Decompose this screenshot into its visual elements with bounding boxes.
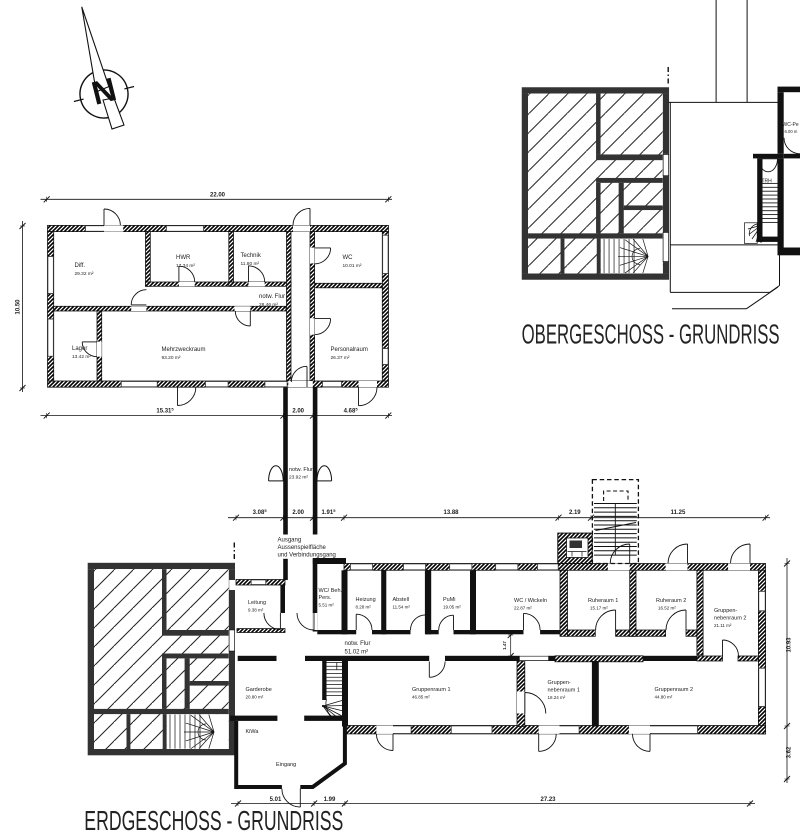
svg-text:Gruppenraum 2: Gruppenraum 2 [655,687,694,693]
svg-text:2.19: 2.19 [569,510,581,516]
svg-text:Gruppen-: Gruppen- [714,608,737,614]
svg-text:51.02 m²: 51.02 m² [345,650,369,656]
svg-text:Pers.: Pers. [319,595,332,601]
svg-text:6.00 m: 6.00 m [785,129,798,134]
svg-text:Mehrzweckraum: Mehrzweckraum [162,347,206,353]
svg-text:notw. Flur: notw. Flur [289,467,313,473]
svg-text:18.24 m²: 18.24 m² [548,695,566,700]
svg-text:nebenraum 2: nebenraum 2 [714,616,746,622]
svg-text:5.51 m²: 5.51 m² [319,603,335,608]
svg-text:46.85 m²: 46.85 m² [412,695,430,700]
svg-text:Aussenspielfläche: Aussenspielfläche [278,545,327,551]
svg-text:1.99: 1.99 [324,797,336,803]
svg-text:10.93: 10.93 [787,637,793,653]
svg-text:15.17 m²: 15.17 m² [590,606,608,611]
svg-text:2.00: 2.00 [292,409,304,415]
svg-text:notw. Flur: notw. Flur [259,294,285,300]
svg-text:ERDGESCHOSS - GRUNDRISS: ERDGESCHOSS - GRUNDRISS [84,805,343,832]
svg-text:22.00: 22.00 [210,193,226,199]
svg-text:28.46 m²: 28.46 m² [259,302,278,308]
svg-text:und Verbindungsgang: und Verbindungsgang [278,553,336,559]
svg-text:WC: WC [343,255,354,261]
svg-text:Abstell: Abstell [393,597,410,603]
svg-text:2.00: 2.00 [292,510,304,516]
svg-text:93.20 m²: 93.20 m² [162,355,181,361]
svg-text:Diff.: Diff. [75,263,86,269]
svg-text:1.47: 1.47 [502,641,507,650]
svg-text:Gruppenraum 1: Gruppenraum 1 [412,687,451,693]
svg-text:Lager: Lager [72,346,87,352]
svg-text:Personalraum: Personalraum [331,347,368,353]
svg-text:PuMi: PuMi [443,597,456,603]
svg-text:WC / Wickeln: WC / Wickeln [514,598,547,604]
svg-text:KiWa: KiWa [246,729,260,735]
svg-text:9.38 m²: 9.38 m² [248,608,264,613]
svg-text:17.34 m²: 17.34 m² [176,263,195,269]
svg-text:22.87 m²: 22.87 m² [514,606,532,611]
svg-text:27.23: 27.23 [540,797,556,803]
svg-text:OBERGESCHOSS - GRUNDRISS: OBERGESCHOSS - GRUNDRISS [522,319,780,350]
svg-text:WC/ Beh./: WC/ Beh./ [319,588,345,594]
svg-text:Garderobe: Garderobe [246,687,272,693]
svg-text:44.80 m²: 44.80 m² [655,695,673,700]
svg-text:Leitung: Leitung [248,600,266,606]
svg-text:11.25: 11.25 [671,510,686,516]
svg-text:13.42 m²: 13.42 m² [72,354,91,360]
svg-text:20.80 m²: 20.80 m² [246,695,264,700]
svg-text:nebenraum 1: nebenraum 1 [548,688,580,694]
svg-text:Eingang: Eingang [276,762,296,768]
svg-text:11.80 m²: 11.80 m² [241,261,260,267]
svg-text:10.50: 10.50 [16,299,22,315]
svg-text:Ruheraum 2: Ruheraum 2 [656,598,686,604]
svg-text:11.54 m²: 11.54 m² [393,605,411,610]
svg-text:8.28 m²: 8.28 m² [356,605,372,610]
svg-text:Technik: Technik [241,253,262,259]
svg-text:16.52 m²: 16.52 m² [658,606,676,611]
svg-text:Heizung: Heizung [356,597,376,603]
svg-text:HWR: HWR [176,255,191,261]
svg-text:26.37 m²: 26.37 m² [331,355,350,361]
svg-text:19.05 m²: 19.05 m² [443,605,461,610]
svg-text:5.01: 5.01 [270,797,282,803]
svg-text:Gruppen-: Gruppen- [548,680,571,686]
svg-text:21.11 m²: 21.11 m² [714,623,732,628]
svg-text:23.92 m²: 23.92 m² [289,475,308,481]
svg-text:notw. Flur: notw. Flur [345,641,371,647]
svg-text:WC-Pe: WC-Pe [783,122,799,128]
svg-text:29.32 m²: 29.32 m² [75,271,94,277]
svg-text:13.88: 13.88 [443,510,459,516]
svg-text:Ausgang: Ausgang [278,538,302,544]
svg-text:3.62: 3.62 [787,746,793,758]
svg-text:Ruheraum 1: Ruheraum 1 [588,598,618,604]
svg-text:10.01 m²: 10.01 m² [343,263,362,269]
